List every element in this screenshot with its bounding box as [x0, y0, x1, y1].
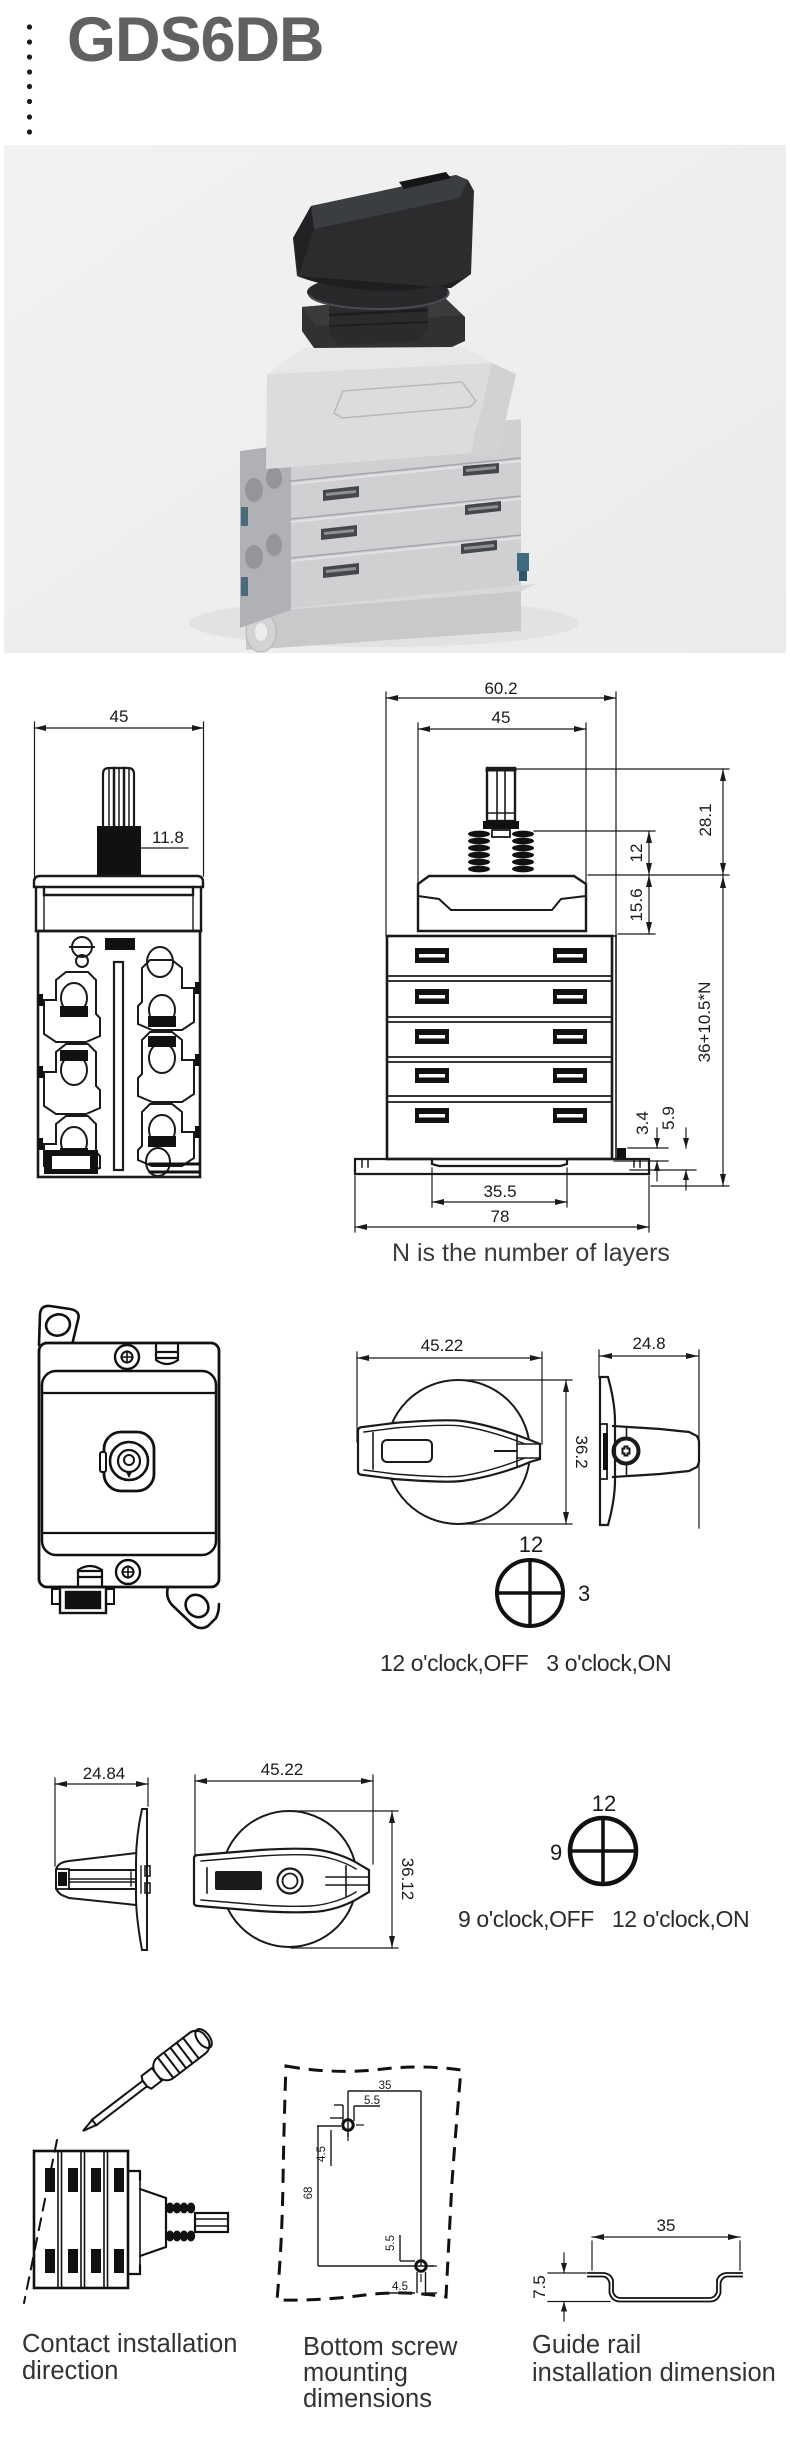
svg-text:45.22: 45.22	[421, 1336, 464, 1355]
svg-text:5.5: 5.5	[364, 2095, 380, 2107]
svg-text:45: 45	[110, 707, 129, 726]
svg-text:68: 68	[303, 2187, 315, 2200]
svg-text:15.6: 15.6	[627, 888, 646, 921]
svg-text:28.1: 28.1	[696, 803, 715, 836]
svg-text:4.5: 4.5	[316, 2146, 328, 2162]
svg-text:35: 35	[657, 2216, 676, 2235]
svg-text:45: 45	[492, 708, 511, 727]
svg-text:3: 3	[578, 1581, 590, 1606]
svg-text:36+10.5*N: 36+10.5*N	[695, 982, 714, 1063]
svg-text:60.2: 60.2	[484, 679, 517, 698]
svg-text:78: 78	[491, 1207, 510, 1226]
svg-text:3.4: 3.4	[633, 1111, 652, 1135]
svg-text:12: 12	[592, 1791, 616, 1816]
svg-text:36.2: 36.2	[572, 1435, 590, 1468]
svg-text:5.5: 5.5	[385, 2235, 397, 2251]
svg-text:4.5: 4.5	[392, 2281, 408, 2293]
svg-text:45.22: 45.22	[261, 1760, 304, 1779]
svg-text:35: 35	[379, 2080, 392, 2092]
svg-text:12: 12	[519, 1532, 543, 1557]
svg-text:11.8: 11.8	[152, 828, 184, 847]
svg-text:24.8: 24.8	[632, 1334, 665, 1353]
svg-text:9: 9	[550, 1840, 562, 1865]
svg-text:36.12: 36.12	[398, 1858, 415, 1901]
svg-text:12: 12	[627, 844, 646, 863]
svg-text:24.84: 24.84	[83, 1764, 126, 1783]
svg-text:35.5: 35.5	[483, 1182, 516, 1201]
svg-text:5.9: 5.9	[659, 1106, 678, 1130]
svg-text:Asiweinh: Asiweinh	[217, 1876, 258, 1887]
svg-text:7.5: 7.5	[530, 2275, 549, 2299]
